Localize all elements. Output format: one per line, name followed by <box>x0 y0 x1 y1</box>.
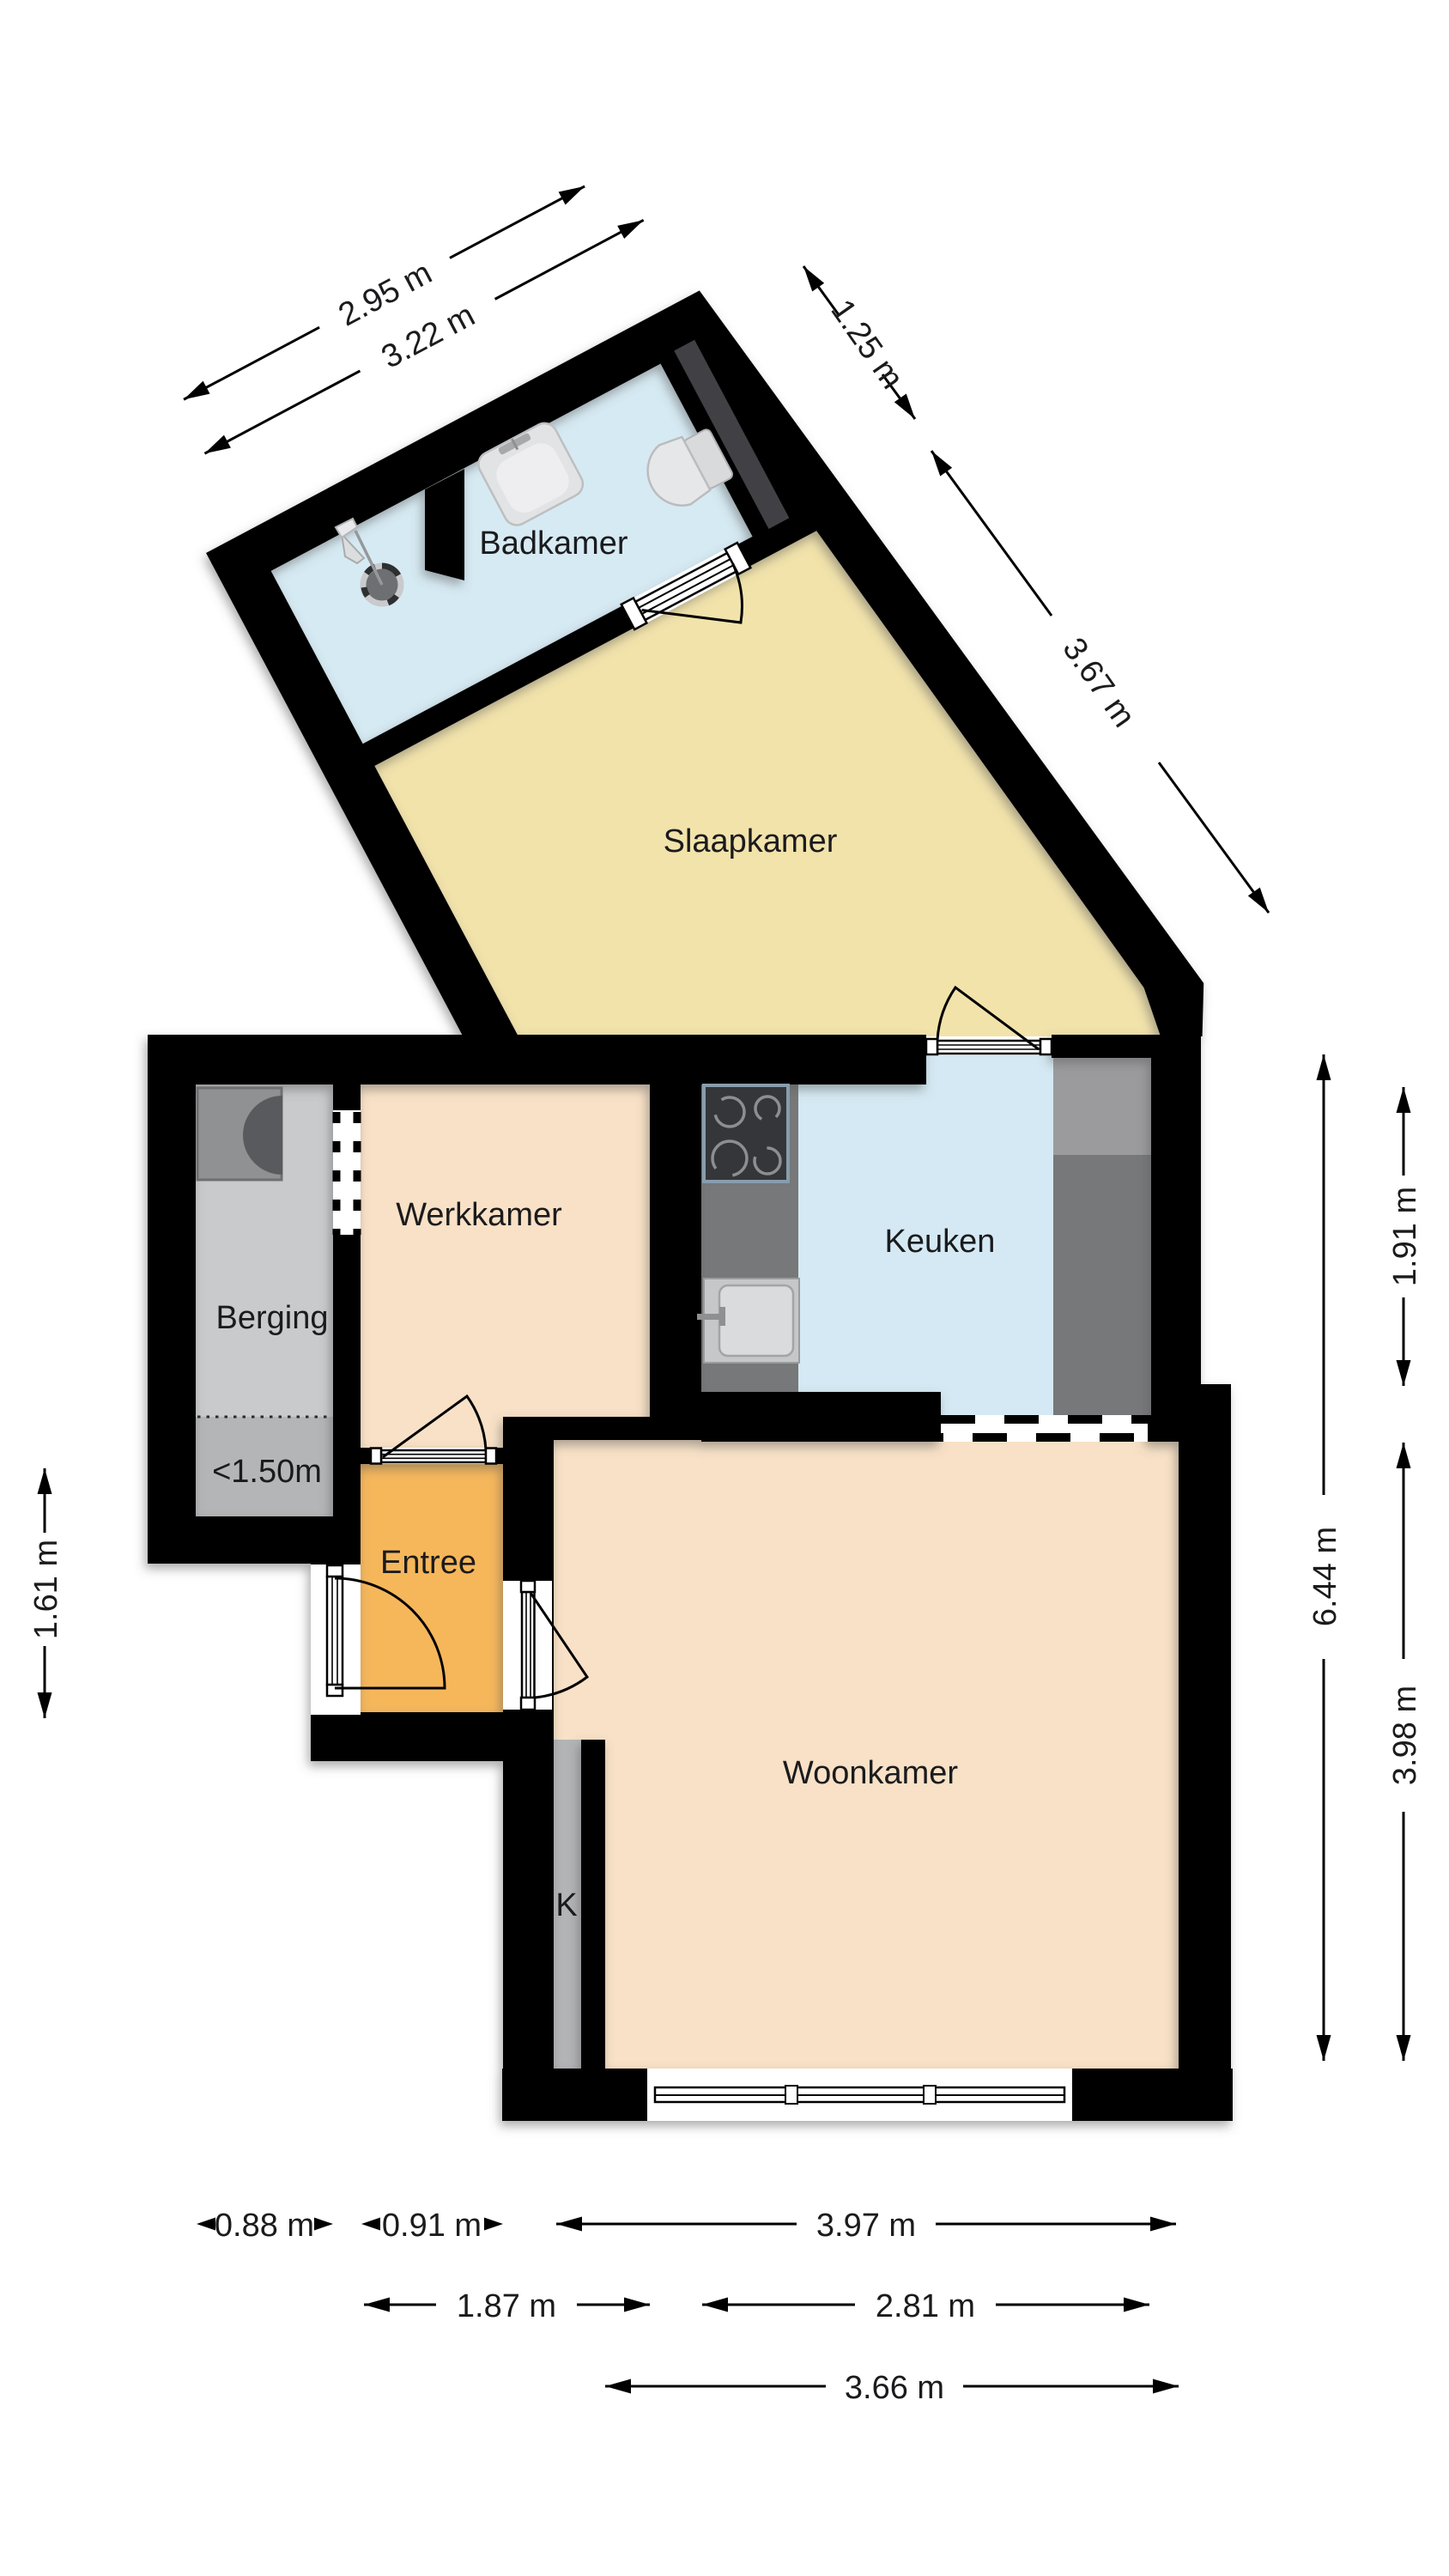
svg-text:1.87 m: 1.87 m <box>457 2288 556 2324</box>
svg-text:0.88 m: 0.88 m <box>215 2208 314 2244</box>
svg-text:3.67 m: 3.67 m <box>1055 631 1142 733</box>
svg-text:3.98 m: 3.98 m <box>1387 1686 1423 1785</box>
svg-text:1.25 m: 1.25 m <box>823 293 910 395</box>
svg-text:1.91 m: 1.91 m <box>1387 1187 1423 1286</box>
svg-text:Werkkamer: Werkkamer <box>396 1197 562 1233</box>
svg-text:Entree: Entree <box>380 1545 476 1581</box>
svg-text:2.81 m: 2.81 m <box>876 2288 975 2324</box>
svg-text:1.61 m: 1.61 m <box>28 1540 64 1639</box>
svg-text:0.91 m: 0.91 m <box>382 2208 482 2244</box>
svg-text:Woonkamer: Woonkamer <box>783 1755 959 1791</box>
svg-text:<1.50m: <1.50m <box>212 1454 322 1490</box>
svg-text:K: K <box>555 1887 577 1923</box>
svg-text:Keuken: Keuken <box>885 1224 996 1260</box>
svg-text:Badkamer: Badkamer <box>479 526 628 562</box>
svg-text:3.66 m: 3.66 m <box>845 2370 944 2406</box>
svg-text:Berging: Berging <box>216 1300 329 1336</box>
svg-text:Slaapkamer: Slaapkamer <box>664 823 838 860</box>
svg-text:3.97 m: 3.97 m <box>816 2208 916 2244</box>
svg-text:6.44 m: 6.44 m <box>1307 1527 1343 1626</box>
